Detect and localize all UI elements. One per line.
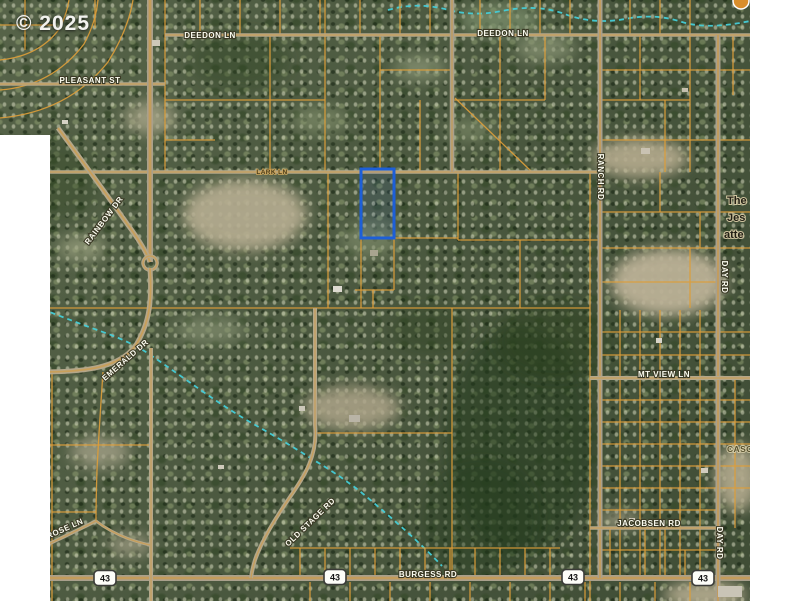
map-content: DEEDON LNDEEDON LNPLEASANT STRAINBOW DRE… [0, 0, 759, 601]
label-pleasant-st: PLEASANT ST [59, 76, 120, 85]
building-roof [701, 468, 708, 473]
building-roof [370, 250, 378, 256]
route-shield-43: 43 [94, 571, 116, 586]
old-stage-rd-road [251, 308, 315, 578]
building-roof [299, 406, 305, 411]
building-roof [682, 88, 688, 92]
label-burgess-rd: BURGESS RD [399, 570, 457, 579]
clearing-patch [592, 138, 688, 178]
dense-forest-patch [20, 140, 100, 220]
label-old-stage-rd: OLD STAGE RD [283, 496, 337, 548]
shield-number: 43 [100, 574, 110, 584]
building-roof [218, 465, 224, 469]
old-stage-rd-road-edge [251, 308, 315, 578]
label-jes: Jes [727, 212, 745, 224]
label-day-rd: DAY RD [715, 527, 724, 560]
clearing-patch [304, 386, 400, 430]
label-the: The [727, 195, 747, 207]
label-atte: atte [724, 229, 744, 241]
clearing-patch [715, 444, 759, 512]
building-roof [656, 338, 662, 343]
shield-number: 43 [568, 573, 578, 583]
map-overlay: DEEDON LNDEEDON LNPLEASANT STRAINBOW DRE… [0, 0, 800, 601]
building-roof [62, 120, 68, 124]
map-badge-icon [733, 0, 749, 9]
label-emerald-dr: EMERALD DR [100, 338, 150, 383]
clearing-patch [175, 316, 245, 344]
route-shield-43: 43 [324, 570, 346, 585]
label-day-rd: DAY RD [720, 261, 729, 294]
label-jacobsen-rd: JACOBSEN RD [617, 519, 681, 528]
building-roof [718, 586, 742, 597]
route-shield-43: 43 [562, 570, 584, 585]
building-roof [641, 148, 650, 154]
copyright-watermark: © 2025 [16, 12, 90, 36]
label-deedon-ln: DEEDON LN [477, 29, 529, 38]
label-ranch-rd: RANCH RD [596, 154, 605, 201]
label-deedon-ln: DEEDON LN [184, 31, 236, 40]
creek-line [388, 6, 750, 26]
aerial-parcel-map[interactable]: DEEDON LNDEEDON LNPLEASANT STRAINBOW DRE… [0, 0, 800, 601]
label-lark-ln: LARK LN [256, 169, 287, 176]
dense-forest-patch [420, 460, 540, 580]
clearing-patch [292, 106, 348, 134]
building-roof [349, 415, 360, 422]
shield-number: 43 [330, 573, 340, 583]
selected-parcel-outline[interactable] [361, 169, 394, 238]
dense-forest-patch [390, 305, 470, 355]
label-casc: CASC [727, 444, 753, 454]
route-shield-43: 43 [692, 571, 714, 586]
building-roof [333, 286, 342, 292]
shield-number: 43 [698, 574, 708, 584]
dense-forest-patch [495, 300, 615, 380]
label-mt-view-ln: MT VIEW LN [638, 370, 690, 379]
clearing-patch [183, 179, 307, 251]
building-roof [152, 40, 160, 46]
clearing-patch [70, 436, 130, 468]
clearing-patch [394, 55, 446, 81]
clearing-patch [58, 235, 106, 261]
